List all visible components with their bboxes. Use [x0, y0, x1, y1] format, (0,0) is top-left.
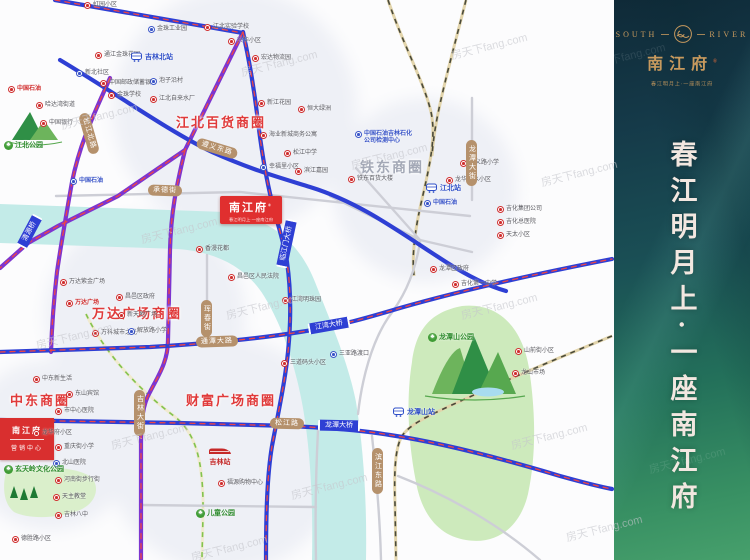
poi-pin-icon — [55, 444, 62, 451]
poi-label: 滨江嘉园 — [295, 168, 328, 175]
poi-text: 吉化第一中学 — [461, 281, 497, 288]
poi-text: 东山宾馆 — [75, 391, 99, 398]
poi-text: 德胜路小区 — [21, 536, 51, 543]
poi-pin-icon — [228, 274, 235, 281]
poi-text: 幸福里小区 — [269, 164, 299, 171]
poi-pin-icon — [497, 219, 504, 226]
bridge-label: 临江门大桥 — [276, 218, 297, 268]
poi-pin-icon — [66, 300, 73, 307]
poi-pin-icon — [497, 206, 504, 213]
poi-pin-icon — [70, 178, 77, 185]
poi-text: 金珠工业园 — [157, 26, 187, 33]
page: 南江府® 春江明月上·一座南江府 南江府 营销中心 江北百货商圈铁东商圈万达广场… — [0, 0, 750, 560]
poi-label: 重庆街小学 — [55, 444, 94, 451]
poi-label: 江北自来水厂 — [150, 96, 195, 103]
poi-text: 龙华府小区 — [42, 430, 72, 437]
poi-label: 中国邮政储蓄银行 — [100, 80, 157, 87]
poi-label: 中国石油 — [8, 86, 41, 93]
poi-text: 三亚路渡口 — [339, 351, 369, 358]
poi-label: 松江中学 — [284, 150, 317, 157]
poi-label: 天主教堂 — [53, 494, 86, 501]
poi-text: 河南街步行街 — [64, 477, 100, 484]
park-label: ♣龙潭山公园 — [428, 332, 474, 342]
poi-text: 江湾明珠园 — [291, 297, 321, 304]
poi-label: 江北实验学校 — [204, 24, 249, 31]
poi-text: 天太小区 — [506, 232, 530, 239]
poi-pin-icon — [150, 96, 157, 103]
poi-text: 兴华小区 — [237, 38, 261, 45]
tree-icon: ♣ — [4, 141, 13, 150]
poi-pin-icon — [281, 360, 288, 367]
road-label: 松江路 — [270, 418, 304, 430]
poi-pin-icon — [452, 281, 459, 288]
poi-text: 三道码头小区 — [290, 360, 326, 367]
poi-pin-icon — [218, 480, 225, 487]
poi-pin-icon — [260, 132, 267, 139]
poi-text: 海业新城商务公寓 — [269, 132, 317, 139]
road-label: 通潭大路 — [196, 335, 238, 347]
poi-pin-icon — [150, 78, 157, 85]
tree-icon: ♣ — [196, 509, 205, 518]
poi-label: 泡子沿村 — [150, 78, 183, 85]
poi-pin-icon — [84, 2, 91, 9]
poi-label: 三亚路渡口 — [330, 351, 369, 358]
station-吉林站: 吉林站 — [208, 446, 232, 467]
poi-pin-icon — [40, 120, 47, 127]
road-label: 吉林大街 — [134, 390, 145, 436]
poi-label: 东山宾馆 — [66, 391, 99, 398]
district-label: 中东商圈 — [10, 390, 70, 409]
sales-box-line2: 营销中心 — [0, 443, 54, 452]
poi-pin-icon — [108, 92, 115, 99]
poi-text: 中国石油 — [433, 200, 457, 207]
poi-label: 中东新生活 — [33, 376, 72, 383]
poi-label: 海业新城商务公寓 — [260, 132, 317, 139]
district-label: 铁东商圈 — [360, 157, 424, 177]
poi-label: 万达广场 — [66, 300, 99, 307]
bridge-label: 清源桥 — [16, 213, 42, 249]
poi-text: 宏达物流园 — [261, 55, 291, 62]
poi-text: 香漫花都 — [205, 246, 229, 253]
poi-label: 宏达物流园 — [252, 55, 291, 62]
poi-pin-icon — [92, 330, 99, 337]
station-吉林北站: 吉林北站 — [130, 52, 173, 62]
poi-text: 福源购物中心 — [227, 480, 263, 487]
poi-label: 龙山市场 — [512, 370, 545, 377]
tree-icon: ♣ — [428, 333, 437, 342]
map-viewport[interactable]: 南江府® 春江明月上·一座南江府 南江府 营销中心 江北百货商圈铁东商圈万达广场… — [0, 0, 614, 560]
poi-text: 泡子沿村 — [159, 78, 183, 85]
brand-logo: SOUTH RIVER 南江府® 春江明月上·一座南江府 — [614, 24, 750, 88]
poi-pin-icon — [298, 106, 305, 113]
poi-text: 金珠学校 — [117, 92, 141, 99]
poi-label: 昌邑区政府 — [116, 294, 155, 301]
poi-pin-icon — [100, 80, 107, 87]
poi-label: 福源购物中心 — [218, 480, 263, 487]
highspeed-train-icon — [208, 446, 232, 457]
poi-label: 昌邑区人民法院 — [228, 274, 279, 281]
poi-text: 万达紫金广场 — [69, 279, 105, 286]
bridge-label: 江湾大桥 — [307, 316, 350, 334]
bridge-label: 龙潭大桥 — [318, 420, 360, 432]
poi-label: 兴华小区 — [228, 38, 261, 45]
poi-pin-icon — [55, 477, 62, 484]
poi-label: 新江花园 — [258, 100, 291, 107]
poi-label: 幸福里小区 — [260, 164, 299, 171]
poi-label: 市中心医院 — [55, 408, 94, 415]
poi-pin-icon — [348, 176, 355, 183]
poi-text: 中东新生活 — [42, 376, 72, 383]
poi-pin-icon — [95, 52, 102, 59]
poi-text: 重庆街小学 — [64, 444, 94, 451]
poi-label: 虹园小区 — [84, 2, 117, 9]
poi-pin-icon — [228, 38, 235, 45]
poi-pin-icon — [36, 102, 43, 109]
poi-text: 山前街小区 — [524, 348, 554, 355]
poi-text: 市中心医院 — [64, 408, 94, 415]
poi-text: 昌邑区人民法院 — [237, 274, 279, 281]
poi-text: 吉化集团公司 — [506, 206, 542, 213]
poi-pin-icon — [118, 312, 125, 319]
project-subtitle: 春江明月上·一座南江府 — [225, 217, 278, 223]
poi-text: 虹园小区 — [93, 2, 117, 9]
poi-text: 恒大绿洲 — [307, 106, 331, 113]
vertical-slogan: 春江明月上·一座南江府 — [663, 140, 702, 518]
poi-label: 金珠学校 — [108, 92, 141, 99]
poi-text: 江北实验学校 — [213, 24, 249, 31]
poi-pin-icon — [284, 150, 291, 157]
road-label: 龙潭大街 — [466, 140, 477, 186]
poi-pin-icon — [424, 200, 431, 207]
poi-text: 松江中学 — [293, 150, 317, 157]
poi-pin-icon — [258, 100, 265, 107]
map-overlay: 南江府® 春江明月上·一座南江府 南江府 营销中心 江北百货商圈铁东商圈万达广场… — [0, 0, 614, 560]
road-label: 承德街 — [148, 184, 182, 196]
poi-text: 中国石油吉林石化公司检测中心 — [364, 131, 412, 145]
poi-pin-icon — [33, 430, 40, 437]
poi-pin-icon — [66, 391, 73, 398]
poi-label: 吉林八中 — [55, 512, 88, 519]
poi-text: 中国石油 — [17, 86, 41, 93]
poi-label: 新天地广场 — [118, 312, 157, 319]
poi-text: 北山医院 — [62, 460, 86, 467]
poi-label: 三道码头小区 — [281, 360, 326, 367]
park-label: ♣儿童公园 — [196, 508, 235, 518]
poi-label: 铁东百货大楼 — [348, 176, 393, 183]
poi-label: 中国石油吉林石化公司检测中心 — [355, 131, 412, 145]
poi-label: 解放路小学 — [128, 328, 167, 335]
poi-pin-icon — [282, 297, 289, 304]
road-label: 滨江东路 — [372, 448, 383, 494]
poi-text: 新北社区 — [85, 70, 109, 77]
poi-label: 哈达湾街道 — [36, 102, 75, 109]
poi-pin-icon — [60, 279, 67, 286]
poi-text: 吉林八中 — [64, 512, 88, 519]
poi-pin-icon — [55, 512, 62, 519]
poi-label: 江湾明珠园 — [282, 297, 321, 304]
poi-text: 新江花园 — [267, 100, 291, 107]
poi-text: 龙潭区政府 — [439, 266, 469, 273]
district-label: 财富广场商圈 — [186, 390, 276, 409]
poi-label: 金珠工业园 — [148, 26, 187, 33]
station-江北站: 江北站 — [425, 183, 461, 193]
poi-label: 龙潭区政府 — [430, 266, 469, 273]
project-name: 南江府® — [220, 199, 282, 215]
road-label: 珲春街 — [201, 300, 212, 337]
moon-river-emblem-icon — [673, 24, 693, 44]
poi-text: 万达广场 — [75, 300, 99, 307]
poi-pin-icon — [204, 24, 211, 31]
logo-line-right — [697, 34, 705, 35]
brand-panel: SOUTH RIVER 南江府® 春江明月上·一座南江府 春江明月上·一座南江府 — [614, 0, 750, 560]
poi-text: 吉化总医院 — [506, 219, 536, 226]
train-icon — [130, 52, 143, 62]
poi-label: 吉化总医院 — [497, 219, 536, 226]
poi-label: 山前街小区 — [515, 348, 554, 355]
poi-pin-icon — [128, 328, 135, 335]
poi-pin-icon — [252, 55, 259, 62]
train-icon — [425, 183, 438, 193]
poi-text: 哈达湾街道 — [45, 102, 75, 109]
park-label: ♣玄天岭文化公园 — [4, 464, 64, 474]
poi-pin-icon — [12, 536, 19, 543]
poi-text: 中国石油 — [79, 178, 103, 185]
poi-text: 龙山市场 — [521, 370, 545, 377]
poi-pin-icon — [53, 494, 60, 501]
poi-text: 天主教堂 — [62, 494, 86, 501]
brand-tagline: 春江明月上·一座南江府 — [624, 80, 740, 88]
poi-label: 龙华府小区 — [33, 430, 72, 437]
poi-label: 万达紫金广场 — [60, 279, 105, 286]
divider — [10, 439, 44, 440]
poi-pin-icon — [355, 131, 362, 138]
poi-text: 江北自来水厂 — [159, 96, 195, 103]
poi-text: 新天地广场 — [127, 312, 157, 319]
poi-pin-icon — [55, 408, 62, 415]
poi-label: 恒大绿洲 — [298, 106, 331, 113]
poi-label: 新北社区 — [76, 70, 109, 77]
poi-label: 中国银行 — [40, 120, 73, 127]
poi-label: 吉化集团公司 — [497, 206, 542, 213]
brand-en-right: RIVER — [709, 30, 748, 39]
poi-text: 中国银行 — [49, 120, 73, 127]
road-label: 松江北路 — [78, 112, 100, 155]
poi-label: 河南街步行街 — [55, 477, 100, 484]
logo-line-left — [661, 34, 669, 35]
poi-text: 解放路小学 — [137, 328, 167, 335]
poi-pin-icon — [515, 348, 522, 355]
poi-label: 吉化第一中学 — [452, 281, 497, 288]
poi-pin-icon — [260, 164, 267, 171]
poi-pin-icon — [76, 70, 83, 77]
poi-text: 昌邑区政府 — [125, 294, 155, 301]
park-label: ♣江北公园 — [4, 140, 43, 150]
poi-pin-icon — [33, 376, 40, 383]
poi-label: 天太小区 — [497, 232, 530, 239]
poi-pin-icon — [512, 370, 519, 377]
tree-icon: ♣ — [4, 465, 13, 474]
poi-text: 铁东百货大楼 — [357, 176, 393, 183]
poi-pin-icon — [8, 86, 15, 93]
sales-office-box: 南江府 营销中心 — [0, 418, 54, 460]
poi-pin-icon — [430, 266, 437, 273]
brand-cn: 南江府® — [614, 50, 750, 74]
project-marker-nanjiangfu[interactable]: 南江府® 春江明月上·一座南江府 — [220, 196, 282, 224]
train-icon — [392, 407, 405, 417]
road-label: 遵义东路 — [195, 137, 238, 160]
poi-label: 中国石油 — [424, 200, 457, 207]
poi-pin-icon — [497, 232, 504, 239]
poi-pin-icon — [196, 246, 203, 253]
poi-label: 香漫花都 — [196, 246, 229, 253]
district-label: 江北百货商圈 — [176, 112, 266, 131]
poi-label: 中国石油 — [70, 178, 103, 185]
poi-text: 滨江嘉园 — [304, 168, 328, 175]
poi-pin-icon — [148, 26, 155, 33]
station-龙潭山站: 龙潭山站 — [392, 407, 435, 417]
poi-pin-icon — [330, 351, 337, 358]
brand-en-left: SOUTH — [616, 30, 658, 39]
poi-pin-icon — [116, 294, 123, 301]
poi-label: 德胜路小区 — [12, 536, 51, 543]
